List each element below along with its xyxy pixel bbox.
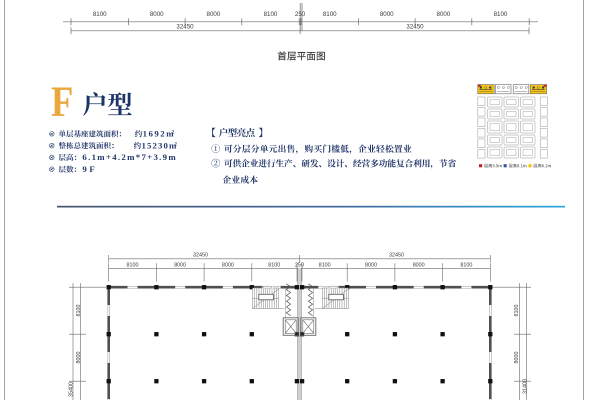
svg-text:9F: 9F [82, 164, 97, 174]
svg-text:8000: 8000 [514, 352, 520, 364]
svg-text:6.1m+4.2m*7+3.9m: 6.1m+4.2m*7+3.9m [82, 152, 177, 162]
svg-text:8100: 8100 [460, 263, 472, 269]
svg-text:8100: 8100 [319, 263, 331, 269]
svg-text:8100: 8100 [93, 11, 107, 18]
svg-text:8100: 8100 [494, 11, 508, 18]
svg-text:32450: 32450 [193, 252, 208, 258]
svg-text:31400: 31400 [522, 379, 528, 394]
svg-text:8000: 8000 [76, 352, 82, 364]
svg-text:8000: 8000 [437, 11, 451, 18]
svg-text:8000: 8000 [150, 11, 164, 18]
svg-text:8100: 8100 [514, 305, 520, 317]
svg-text:F: F [51, 77, 73, 125]
svg-text:32450: 32450 [389, 252, 404, 258]
svg-text:250: 250 [295, 263, 304, 269]
svg-text:8100: 8100 [268, 263, 280, 269]
svg-text:8000: 8000 [207, 11, 221, 18]
svg-text:8000: 8000 [365, 263, 377, 269]
svg-text:35400: 35400 [68, 382, 74, 397]
svg-text:8100: 8100 [264, 11, 278, 18]
svg-text:8000: 8000 [222, 263, 234, 269]
svg-text:8000: 8000 [174, 263, 186, 269]
svg-text:15230m: 15230m [142, 140, 178, 150]
svg-text:8100: 8100 [127, 263, 139, 269]
svg-text:8000: 8000 [380, 11, 394, 18]
svg-text:1692m: 1692m [143, 129, 175, 139]
svg-text:8100: 8100 [76, 305, 82, 317]
svg-text:8100: 8100 [323, 11, 337, 18]
svg-text:8000: 8000 [413, 263, 425, 269]
